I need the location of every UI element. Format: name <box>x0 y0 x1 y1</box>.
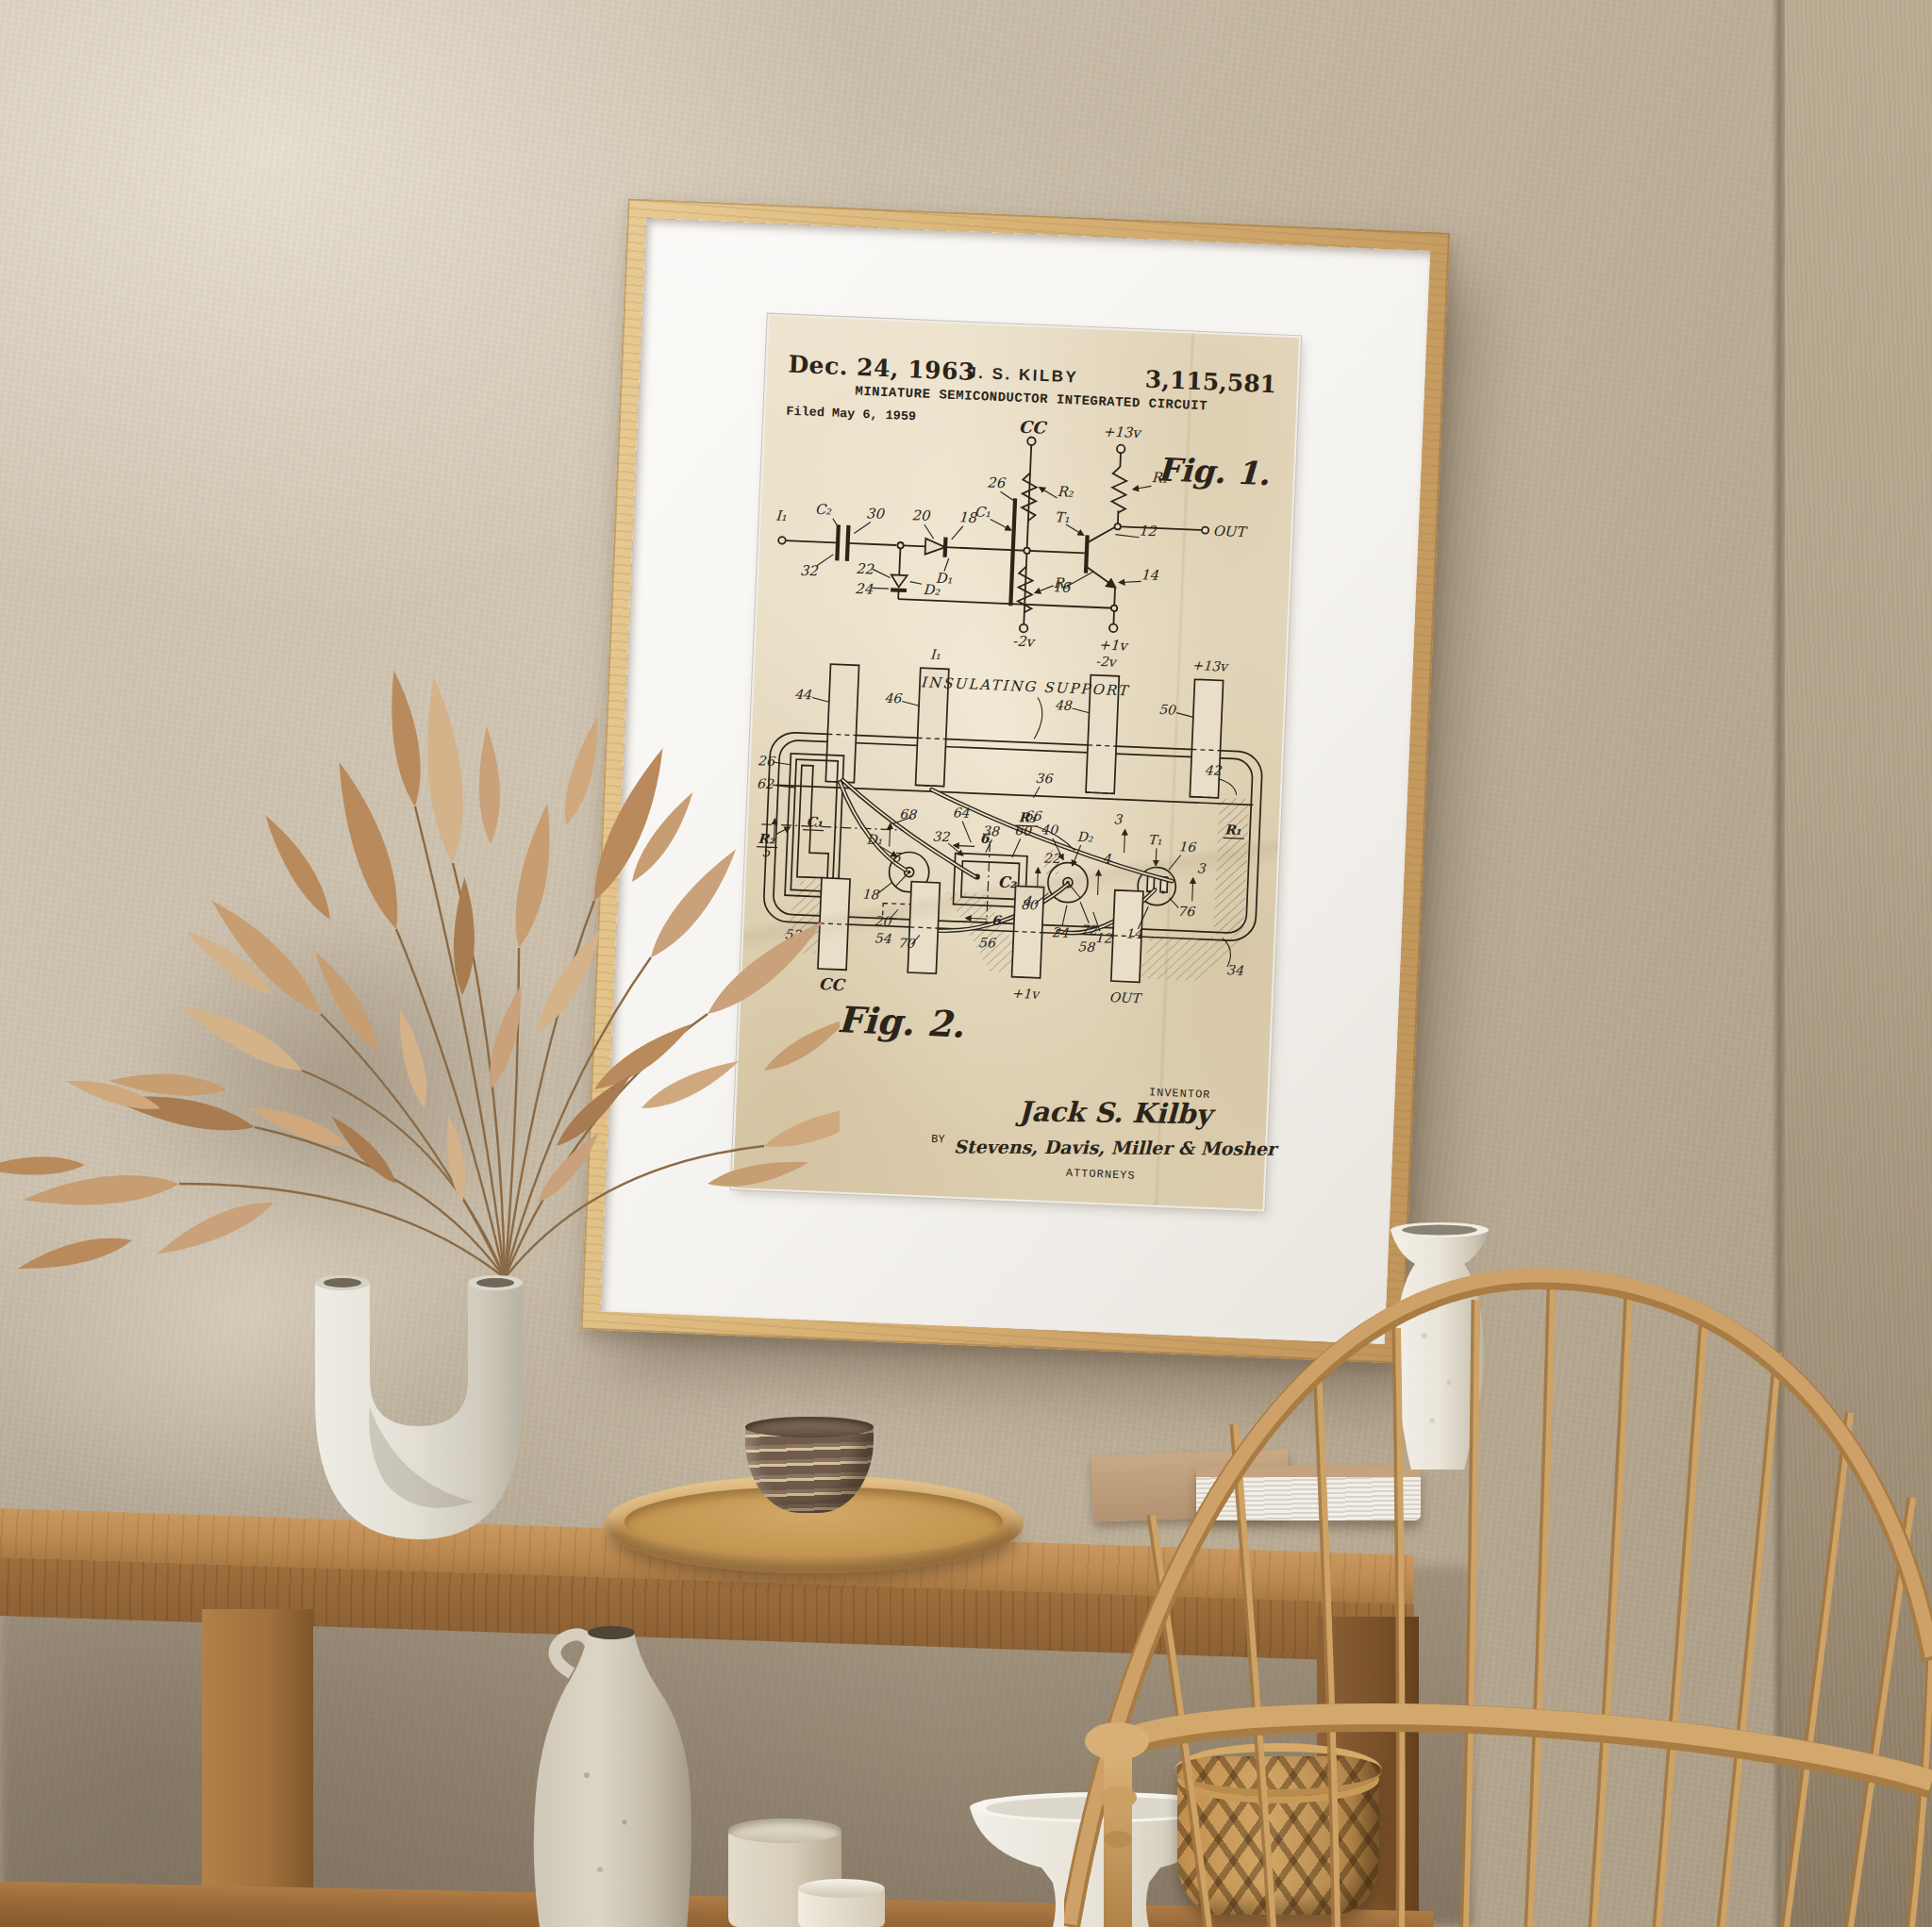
fig2-label-54: 54 <box>874 930 892 946</box>
fig2-label-3-right: 3 <box>1196 860 1207 875</box>
inventor-signature: Jack S. Kilby <box>1018 1095 1211 1130</box>
fig2-label-c2: C₂ <box>997 873 1018 892</box>
fig1-label-c2: C₂ <box>815 501 833 518</box>
fig2-label-plus1v: +1v <box>1011 986 1041 1002</box>
patent-number: 3,115,581 <box>1144 366 1276 399</box>
fig2-label-12: 12 <box>1094 930 1113 946</box>
fig1-label-out: OUT <box>1212 523 1248 540</box>
fig2-label-36: 36 <box>1035 771 1055 787</box>
fig2-label-plus13v: +13v <box>1191 657 1229 674</box>
fig2-label-48: 48 <box>1055 697 1074 713</box>
fig2-label-14: 14 <box>1125 925 1144 941</box>
fig2-label-22: 22 <box>1043 850 1062 866</box>
fig1-label-26: 26 <box>987 473 1007 490</box>
fig1-label-plus13v: +13v <box>1103 423 1143 440</box>
fig2-label-out: OUT <box>1108 989 1142 1005</box>
fig2-caption: Fig. 2. <box>837 998 965 1046</box>
fig2-label-r1: R₁ <box>1224 822 1241 838</box>
room-scene: Dec. 24, 1963 J. S. KILBY 3,115,581 MINI… <box>0 0 1932 1927</box>
fig2-label-38: 38 <box>982 823 1001 839</box>
attorneys-label: ATTORNEYS <box>1066 1167 1136 1183</box>
chair-arm-post <box>1099 1756 1137 1927</box>
fig1-label-t1: T₁ <box>1055 508 1071 525</box>
fig2-label-d1: D₁ <box>866 832 883 848</box>
fig2-label-50: 50 <box>1158 702 1177 718</box>
patent-inventor-name: J. S. KILBY <box>967 364 1079 388</box>
fig2-label-5-right: 5 <box>891 850 902 865</box>
chair-arm-handrest <box>1085 1722 1149 1760</box>
fig1-labels: I₁ C₂ 30 32 20 18 D₁ 22 24 D₂ 26 C₁ <box>771 408 1273 659</box>
fig1-label-22: 22 <box>856 560 875 577</box>
fig1-label-20: 20 <box>911 507 931 523</box>
plant-leaves <box>0 669 840 1274</box>
fig2-label-58: 58 <box>1077 939 1096 955</box>
by-label: BY <box>931 1133 945 1147</box>
fig1-label-i1: I₁ <box>775 507 788 523</box>
fig2-label-64: 64 <box>952 805 971 821</box>
u-shaped-vase <box>304 1266 534 1554</box>
fig2-label-16: 16 <box>1178 839 1198 855</box>
fig2-label-70: 70 <box>897 935 916 951</box>
fig2-label-32: 32 <box>932 828 951 844</box>
fig2-label-42: 42 <box>1204 762 1223 778</box>
figure-1-schematic: I₁ C₂ 30 32 20 18 D₁ 22 24 D₂ 26 C₁ <box>761 408 1290 661</box>
tall-jug-vase <box>502 1624 728 1927</box>
fig1-label-c1: C₁ <box>974 504 991 521</box>
fig2-label-60: 60 <box>1014 822 1033 839</box>
fig1-label-d2: D₂ <box>923 581 941 598</box>
fig1-label-12: 12 <box>1139 523 1158 540</box>
fig2-label-24: 24 <box>1051 924 1070 940</box>
spindle-chair <box>1064 1254 1932 1927</box>
fig2-label-3-left: 3 <box>1113 811 1124 826</box>
fig2-label-68: 68 <box>899 806 918 822</box>
fig1-label-16: 16 <box>1052 578 1072 595</box>
fig2-label-76: 76 <box>1177 904 1197 920</box>
fig2-label-i1: I₁ <box>930 646 941 661</box>
fig1-label-cc: CC <box>1018 417 1048 438</box>
small-white-cup <box>798 1886 885 1927</box>
fig2-label-56: 56 <box>978 935 998 951</box>
fig2-label-t1: T₁ <box>1147 832 1162 848</box>
attorney-signature: Stevens, Davis, Miller & Mosher <box>954 1136 1208 1158</box>
fig2-label-34: 34 <box>1226 962 1245 978</box>
fig1-label-30: 30 <box>866 505 886 522</box>
fig2-label-40: 40 <box>1041 822 1059 838</box>
chair-spindles <box>1153 1287 1932 1927</box>
fig1-label-24: 24 <box>855 580 874 597</box>
table-leg-left <box>202 1609 313 1927</box>
patent-date: Dec. 24, 1963 <box>788 351 976 386</box>
fig2-label-18: 18 <box>861 887 880 903</box>
dried-plant <box>0 523 840 1321</box>
fig2-label-20: 20 <box>874 913 892 929</box>
fig2-label-d2: D₂ <box>1076 829 1093 845</box>
fig1-label-r2: R₂ <box>1057 483 1074 500</box>
fig2-label-minus2v: -2v <box>1095 654 1118 670</box>
fig2-label-46: 46 <box>884 690 904 706</box>
fig1-caption: Fig. 1. <box>1157 450 1271 492</box>
fig1-label-14: 14 <box>1141 566 1159 583</box>
